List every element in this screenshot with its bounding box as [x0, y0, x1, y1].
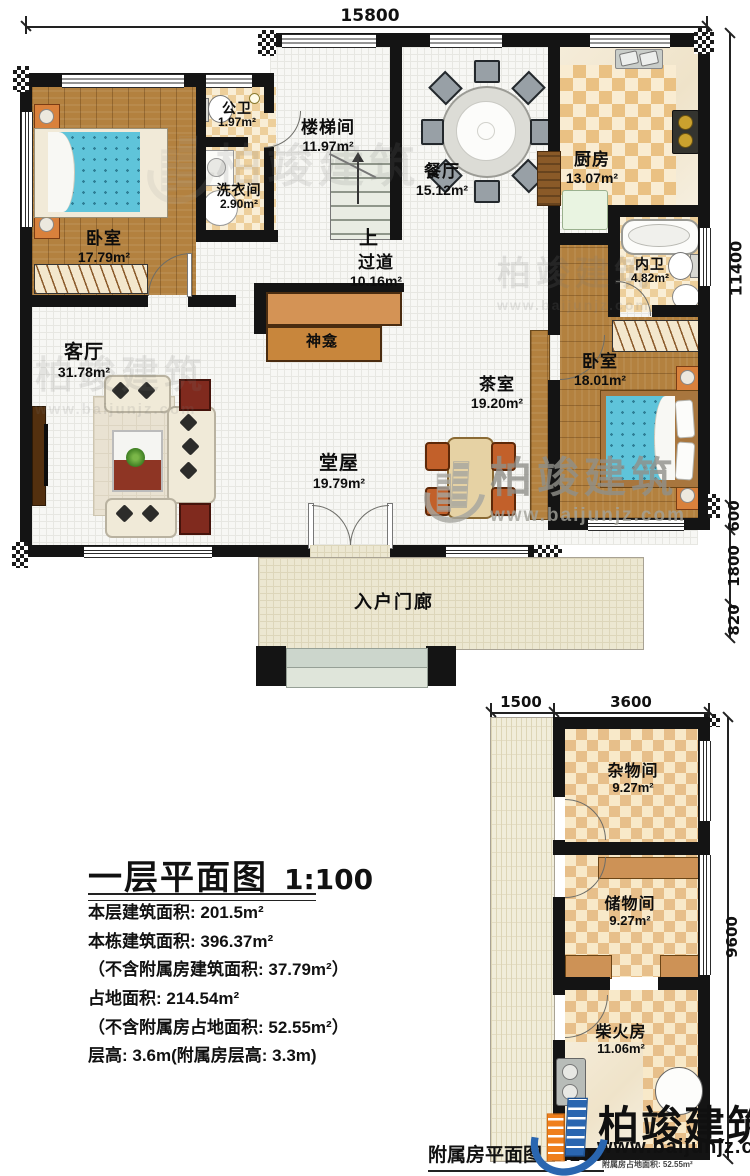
room-label-ensuite-bath: 内卫 4.82m² — [631, 256, 669, 286]
room-area: 11.97m² — [301, 138, 355, 154]
window — [699, 741, 711, 821]
window — [21, 112, 33, 227]
wall — [553, 840, 565, 855]
room-label-sundry: 杂物间 9.27m² — [607, 763, 658, 796]
chair-icon — [491, 442, 516, 471]
wall — [196, 230, 278, 242]
wall — [608, 205, 710, 217]
plant-icon — [126, 448, 145, 467]
wall — [652, 305, 710, 317]
room-label-tea-room: 茶室 19.20m² — [471, 375, 523, 411]
wall — [658, 977, 710, 990]
room-label-main-hall: 堂屋 19.79m² — [313, 453, 365, 491]
wall — [548, 33, 560, 152]
lamp-icon — [39, 217, 54, 232]
washer-drum-icon — [207, 158, 226, 177]
floor-tea-screen — [530, 330, 550, 520]
room-label-bedroom-bottom-right: 卧室 18.01m² — [574, 352, 626, 388]
hatch-mark — [12, 542, 28, 568]
wall — [565, 842, 710, 855]
room-area: 18.01m² — [574, 372, 626, 388]
room-name: 客厅 — [58, 342, 110, 364]
brand-logo-icon — [532, 1092, 599, 1166]
wall — [196, 87, 206, 240]
kitchen-door — [537, 151, 561, 206]
stairs-up-arrow-icon — [357, 160, 359, 204]
room-label-living: 客厅 31.78m² — [58, 342, 110, 380]
dim-right-820: 820 — [725, 590, 743, 650]
counter — [565, 955, 612, 979]
porch-floor — [258, 557, 644, 650]
counter — [598, 857, 700, 879]
room-label-stairwell: 楼梯间 11.97m² — [301, 118, 355, 154]
title-underline — [88, 893, 316, 901]
stat-line: 本层建筑面积: 201.5m² — [88, 904, 438, 923]
porch-column — [256, 646, 286, 686]
porch-step — [286, 667, 428, 688]
room-area: 17.79m² — [78, 249, 130, 265]
stairs — [330, 150, 393, 240]
wall — [188, 295, 236, 307]
room-name: 楼梯间 — [301, 118, 355, 138]
fridge-icon — [562, 190, 608, 230]
room-area: 1.97m² — [218, 116, 256, 130]
tea-table — [447, 437, 494, 519]
window — [588, 519, 684, 531]
hatch-mark — [258, 30, 276, 56]
room-name: 卧室 — [78, 229, 130, 249]
dim-annex-9600: 9600 — [723, 907, 741, 967]
room-label-firewood: 柴火房 11.06m² — [595, 1024, 646, 1057]
door-leaf — [187, 253, 192, 297]
room-label-bedroom-top-left: 卧室 17.79m² — [78, 229, 130, 265]
chair-icon — [421, 119, 444, 145]
shrine-cabinet — [266, 292, 402, 326]
plan-scale: 1:100 — [284, 863, 373, 896]
annex-footprint-note: 附属房占地面积: 52.55m² — [602, 1159, 693, 1170]
dining-table-center — [477, 122, 495, 140]
dim-top-label: 15800 — [330, 6, 410, 26]
chair-icon — [425, 487, 450, 516]
room-name: 厨房 — [566, 150, 618, 170]
stat-line: 层高: 3.6m(附属房层高: 3.3m) — [88, 1047, 438, 1066]
room-label-laundry: 洗衣间 2.90m² — [217, 182, 262, 212]
porch-step — [286, 648, 428, 669]
window — [430, 34, 502, 48]
room-name: 洗衣间 — [217, 182, 262, 198]
logo-tower-icon — [564, 1098, 587, 1157]
tv-icon — [44, 424, 48, 486]
lamp-icon — [680, 370, 695, 385]
dim-right-1800: 1800 — [725, 536, 743, 596]
room-label-public-bath: 公卫 1.97m² — [218, 100, 256, 130]
room-name: 过道 — [350, 253, 402, 273]
window — [699, 228, 711, 286]
room-name: 茶室 — [471, 375, 523, 395]
wardrobe — [34, 264, 148, 294]
dim-annex-1500: 1500 — [491, 693, 551, 711]
wall — [553, 977, 610, 990]
room-name: 公卫 — [218, 100, 256, 116]
window — [62, 74, 184, 88]
wall — [553, 717, 710, 729]
burner-icon — [562, 1064, 578, 1080]
chair-icon — [474, 60, 500, 83]
room-area: 2.90m² — [217, 198, 262, 212]
room-label-porch: 入户门廊 — [354, 592, 434, 613]
porch-threshold — [310, 545, 390, 557]
room-area: 4.82m² — [631, 272, 669, 286]
dim-annex-3600: 3600 — [601, 693, 661, 711]
window — [699, 855, 711, 975]
dim-line-annex-top — [490, 712, 710, 714]
dim-line-top — [25, 26, 707, 28]
room-label-kitchen: 厨房 13.07m² — [566, 150, 618, 186]
counter — [660, 955, 700, 979]
room-area: 19.20m² — [471, 395, 523, 411]
wall — [390, 33, 402, 240]
wardrobe — [612, 320, 700, 352]
floor-plan-page: 卧室 17.79m² 公卫 1.97m² 洗衣间 2.90m² 楼梯间 11.9… — [0, 0, 750, 1176]
stat-line: 占地面积: 214.54m² — [88, 990, 438, 1009]
bed-sheet — [654, 396, 675, 480]
room-name: 堂屋 — [313, 453, 365, 475]
room-label-hallway: 过道 10.16m² — [350, 253, 402, 289]
wall — [264, 147, 274, 240]
room-label-storage: 储物间 9.27m² — [604, 896, 655, 929]
chair-icon — [474, 180, 500, 203]
wall — [548, 240, 560, 335]
room-area: 31.78m² — [58, 364, 110, 380]
stat-line: （不含附属房占地面积: 52.55m²） — [88, 1019, 438, 1038]
annex-title-text: 附属房平面图 — [428, 1145, 542, 1166]
wall — [548, 380, 560, 530]
wall — [264, 73, 274, 113]
stairs-up-label: 上 — [359, 228, 379, 250]
room-area: 11.06m² — [595, 1042, 646, 1057]
chair-icon — [491, 487, 516, 516]
toilet-icon — [668, 252, 693, 280]
plan-stats: 本层建筑面积: 201.5m² 本栋建筑面积: 396.37m² （不含附属房建… — [88, 904, 438, 1076]
wall — [553, 717, 565, 797]
room-area: 9.27m² — [604, 914, 655, 929]
room-area: 10.16m² — [350, 273, 402, 289]
porch-column — [426, 646, 456, 686]
room-name: 餐厅 — [416, 162, 468, 182]
pillow-icon — [675, 399, 696, 438]
room-area: 19.79m² — [313, 475, 365, 491]
room-name: 柴火房 — [595, 1024, 646, 1042]
room-label-shrine: 神龛 — [306, 333, 338, 350]
lamp-icon — [39, 109, 54, 124]
room-area: 13.07m² — [566, 170, 618, 186]
side-table — [179, 379, 211, 411]
hatch-mark — [13, 66, 29, 92]
stat-line: （不含附属房建筑面积: 37.79m²） — [88, 961, 438, 980]
window — [590, 34, 670, 48]
hatch-mark — [708, 494, 720, 518]
sofa — [105, 498, 177, 538]
room-name: 入户门廊 — [354, 592, 434, 613]
window — [282, 34, 376, 48]
stairs-up-text: 上 — [359, 228, 379, 250]
brand-url: www.baijunjz.com — [597, 1136, 750, 1159]
window — [84, 546, 212, 558]
room-name: 内卫 — [631, 256, 669, 272]
room-label-dining: 餐厅 15.12m² — [416, 162, 468, 198]
wall — [20, 295, 148, 307]
window — [206, 74, 252, 88]
lamp-icon — [680, 488, 695, 503]
bathtub-inner-icon — [628, 224, 690, 247]
room-area: 15.12m² — [416, 182, 468, 198]
pillow-icon — [675, 441, 696, 480]
side-table — [179, 503, 211, 535]
plan-title: 一层平面图1:100 — [88, 850, 373, 899]
burner-icon — [678, 133, 693, 148]
room-name: 卧室 — [574, 352, 626, 372]
stat-line: 本栋建筑面积: 396.37m² — [88, 933, 438, 952]
wall — [196, 137, 248, 147]
wall — [254, 290, 266, 334]
plan-title-text: 一层平面图 — [88, 859, 268, 897]
room-name: 储物间 — [604, 896, 655, 914]
chair-icon — [425, 442, 450, 471]
dim-right-total: 11400 — [727, 239, 746, 299]
room-name: 神龛 — [306, 333, 338, 350]
burner-icon — [678, 115, 693, 130]
room-area: 9.27m² — [607, 781, 658, 796]
room-name: 杂物间 — [607, 763, 658, 781]
wall — [256, 545, 310, 557]
logo-tower-icon — [547, 1113, 565, 1161]
